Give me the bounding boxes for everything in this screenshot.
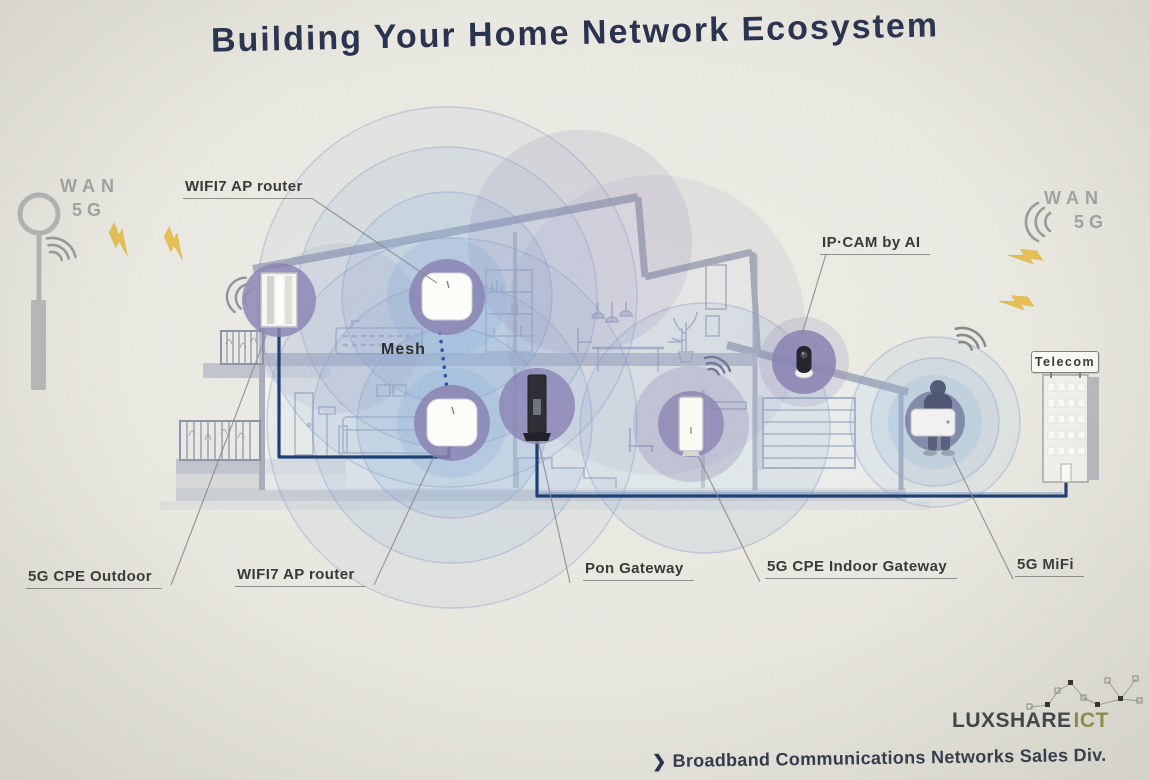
wan-pole bbox=[20, 195, 58, 390]
balcony-railings bbox=[180, 331, 263, 460]
label-cpe-indoor: 5G CPE Indoor Gateway bbox=[765, 558, 957, 579]
wan-5g-left-label: WAN 5G bbox=[60, 174, 120, 222]
label-ip-cam: IP·CAM by AI bbox=[820, 234, 930, 255]
slide-photo: { "slide": { "title": "Building Your Hom… bbox=[0, 0, 1150, 780]
home-network-diagram bbox=[0, 0, 1150, 780]
label-mesh: Mesh bbox=[381, 341, 426, 359]
brand-secondary: ICT bbox=[1074, 709, 1109, 732]
label-cpe-outdoor: 5G CPE Outdoor bbox=[26, 568, 162, 589]
wifi-coverage-circles bbox=[255, 107, 1020, 608]
cpe-indoor-device bbox=[679, 397, 703, 456]
brand-primary: LUXSHARE bbox=[952, 709, 1072, 732]
ip-cam-device bbox=[795, 346, 813, 378]
telecom-building bbox=[1043, 373, 1099, 482]
label-pon-gateway: Pon Gateway bbox=[583, 560, 694, 581]
label-wifi7-ap-router-top: WIFI7 AP router bbox=[183, 178, 313, 199]
label-5g-mifi: 5G MiFi bbox=[1015, 556, 1084, 577]
label-wifi7-ap-router-bottom: WIFI7 AP router bbox=[235, 566, 365, 587]
brand-luxshare-ict: LUXSHAREICT bbox=[952, 709, 1109, 733]
wifi7-ap-bottom-device bbox=[427, 399, 477, 446]
telecom-sign: Telecom bbox=[1031, 351, 1099, 373]
wan-5g-right-label: WAN 5G bbox=[1044, 186, 1108, 234]
wan-left-signal-icon bbox=[47, 234, 75, 262]
chevron-icon: ❯ bbox=[652, 752, 667, 771]
cpe-outdoor-device bbox=[261, 273, 297, 327]
wifi7-ap-top-device bbox=[422, 273, 472, 320]
